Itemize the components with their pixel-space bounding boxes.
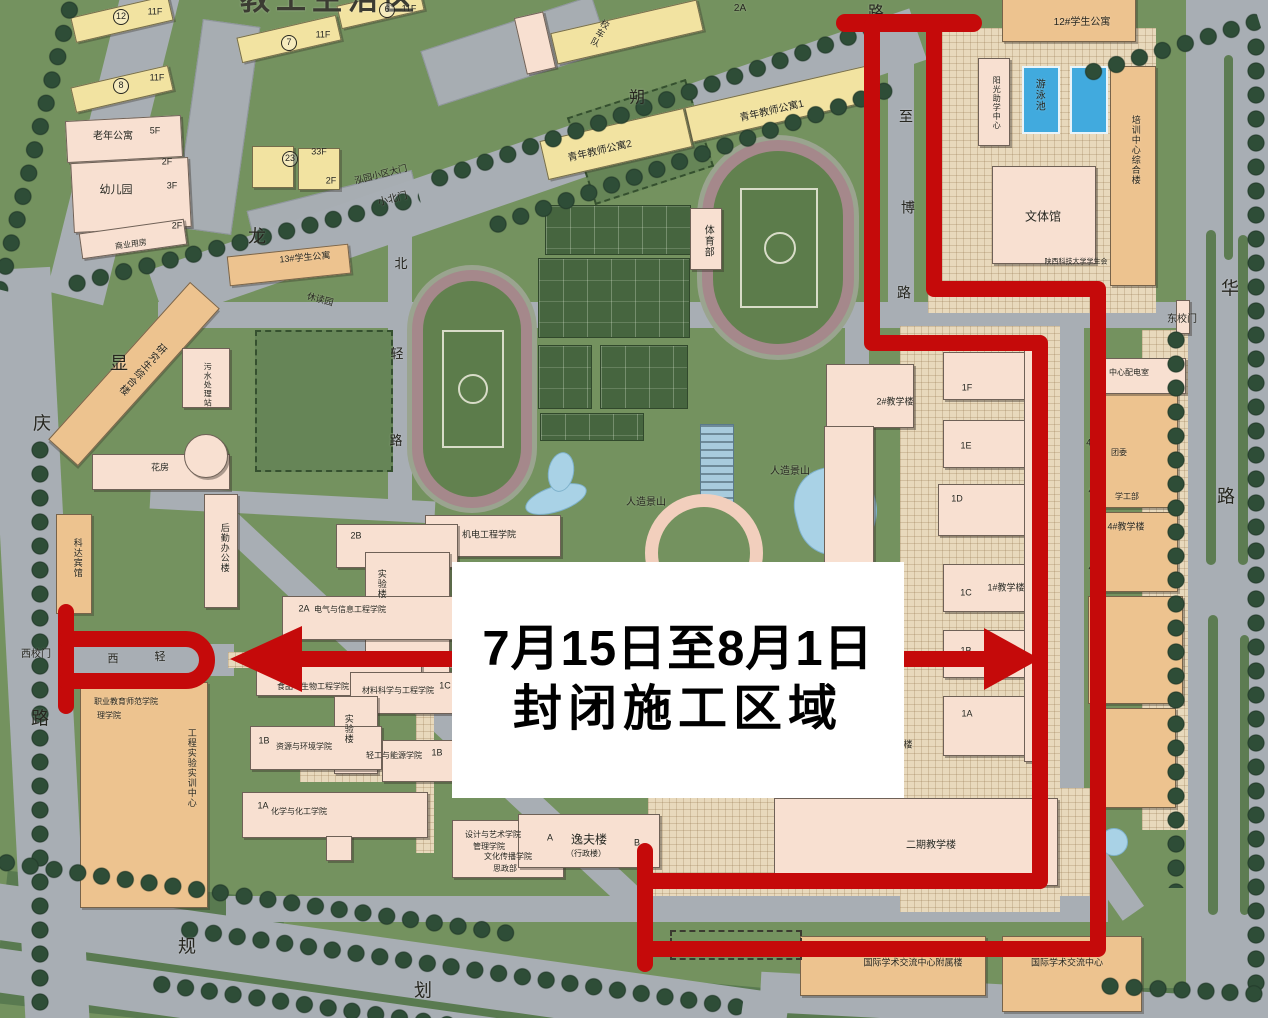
building-name: 商业用房 [115, 239, 148, 252]
building-name: 体育部 [702, 225, 713, 258]
building-name: 管理学院 [473, 843, 505, 851]
building-name: 陕西科技大学学生会 [1045, 258, 1108, 265]
building-name: 游泳池 [1033, 79, 1044, 112]
building-name: 青年教师公寓2 [567, 140, 633, 165]
building-name: 学工部 [1115, 493, 1139, 501]
building-name: 中心配电室 [1109, 369, 1149, 377]
building-name: 食品与生物工程学院 [277, 683, 349, 691]
building-name: 机电工程学院 [462, 530, 516, 539]
residence-no: 7 [281, 35, 297, 51]
building-code: 1B [258, 736, 269, 745]
building-name: 实验楼 [343, 714, 352, 744]
gate-name: 泓园小区大门 [354, 164, 409, 186]
place-name: 人造景山 [626, 498, 666, 509]
building-code: 1D [951, 494, 963, 503]
closure-notice: 7月15日至8月1日 封闭施工区域 [452, 562, 904, 798]
gate-name: 南校门（规划） [705, 942, 768, 951]
building-code: 4C [1086, 438, 1098, 447]
road-name: 路 [203, 654, 214, 666]
building-name: 污水处理站 [203, 363, 211, 408]
road-name: 庆 [33, 415, 51, 434]
road-name: 路 [868, 6, 884, 23]
road-name: 路 [897, 286, 911, 301]
building-code: 4A [1088, 563, 1099, 572]
building-name: 科达宾馆 [72, 538, 81, 578]
building-name: 老年公寓 [93, 132, 133, 143]
road-name: 北 [394, 257, 407, 271]
building-name: （行政楼） [566, 850, 606, 858]
floors: 2F [326, 176, 337, 185]
closure-notice-dates: 7月15日至8月1日 [482, 620, 873, 680]
road-name: 路 [389, 434, 402, 448]
building-name: 团委 [1111, 449, 1127, 457]
building-name: 幼儿园 [100, 185, 133, 197]
floors: 11F [148, 7, 163, 16]
floors: 11F [150, 73, 165, 82]
road-name: 划 [414, 982, 432, 1001]
residence-no: 12 [113, 9, 129, 25]
building-code: B [634, 838, 640, 847]
building-name: 材料科学与工程学院 [362, 687, 434, 695]
floors: 2F [162, 157, 173, 166]
building-name: 文化传播学院 [484, 853, 532, 861]
building-code: 1F [962, 383, 973, 392]
road-name: 规 [178, 938, 196, 957]
building-code: 1A [257, 801, 268, 810]
building-code: 2A [298, 604, 309, 613]
building-code: 1E [960, 441, 971, 450]
building-name: 设计与艺术学院 [465, 831, 521, 839]
building-name: 校车队 [588, 18, 610, 49]
building-name: 国际学术交流中心 [1031, 958, 1103, 967]
gate-name: 小北门 [377, 191, 409, 208]
floors: 11F [316, 30, 331, 39]
floors: 3F [167, 181, 178, 190]
building-code: 1A [961, 709, 972, 718]
building-name: 青年教师公寓1 [739, 100, 805, 125]
building-name: 化学与化工学院 [271, 808, 327, 816]
building-name: 轻工与能源学院 [366, 752, 422, 760]
floors: 33F [311, 147, 327, 156]
road-name: 轻 [390, 347, 403, 361]
road-name: 西 [108, 654, 119, 666]
building-code: 1B [431, 748, 442, 757]
gate-name: 西校门 [21, 650, 51, 661]
building-code: 1C [960, 588, 972, 597]
building-name: 阳光助学中心 [992, 76, 1000, 130]
building-code: 2A [734, 4, 746, 15]
building-name: 1#教学楼 [987, 583, 1024, 592]
floors: 11F [402, 4, 417, 13]
floors: 2F [172, 221, 183, 230]
residence-no: 8 [113, 78, 129, 94]
building-code: 1C [283, 667, 295, 676]
place-name: 人造景山 [770, 467, 810, 478]
building-name: 国际学术交流中心附属楼 [863, 958, 962, 967]
road-name: 龙 [248, 228, 266, 247]
residence-no: 23 [282, 151, 298, 167]
building-name: 培训中心综合楼 [1130, 115, 1139, 185]
building-name: 职业教育师范学院 [94, 698, 158, 706]
building-name: 4#教学楼 [1107, 522, 1144, 531]
building-name: 思政部 [493, 865, 517, 873]
building-name: 二期教学楼 [906, 841, 956, 852]
building-name: 逸夫楼 [571, 834, 607, 847]
road-name: 博 [901, 201, 915, 216]
road-name: 华 [1221, 280, 1239, 299]
road-name: 显 [110, 355, 128, 374]
road-name: 至 [899, 110, 913, 125]
campus-map: 教工生活区1211F611F711F811F2A路老年公寓5F2F2333F2F… [0, 0, 1268, 1018]
building-name: 楼 [903, 740, 912, 749]
building-name: 花房 [151, 463, 169, 472]
building-name: 文体馆 [1025, 211, 1061, 224]
gate-name: 东校门 [1167, 315, 1197, 326]
building-code: 4B [1088, 486, 1099, 495]
building-name: 资源与环境学院 [276, 743, 332, 751]
building-code: 1B [960, 646, 971, 655]
building-name: 工程实验实训中心 [186, 728, 195, 808]
road-name: 朔 [629, 91, 645, 108]
building-code: A [547, 833, 553, 842]
building-name: 2#教学楼 [876, 397, 913, 406]
road-name: 路 [1217, 488, 1235, 507]
building-name: 13#学生公寓 [279, 251, 331, 265]
building-code: 2B [350, 531, 361, 540]
building-name: 理学院 [97, 712, 121, 720]
place-name: 休读园 [306, 292, 335, 308]
road-name: 轻 [155, 652, 166, 664]
building-name: 电气与信息工程学院 [314, 606, 386, 614]
road-name: 路 [31, 710, 49, 729]
building-code: 1C [439, 681, 451, 690]
building-name: 12#学生公寓 [1054, 18, 1111, 29]
building-name: 后勤办公楼 [219, 523, 228, 573]
floors: 5F [150, 126, 161, 135]
residence-no: 6 [379, 2, 395, 18]
map-labels-layer: 教工生活区1211F611F711F811F2A路老年公寓5F2F2333F2F… [0, 0, 1268, 1018]
building-name: 实验楼 [376, 569, 385, 599]
closure-notice-text: 封闭施工区域 [513, 680, 843, 740]
